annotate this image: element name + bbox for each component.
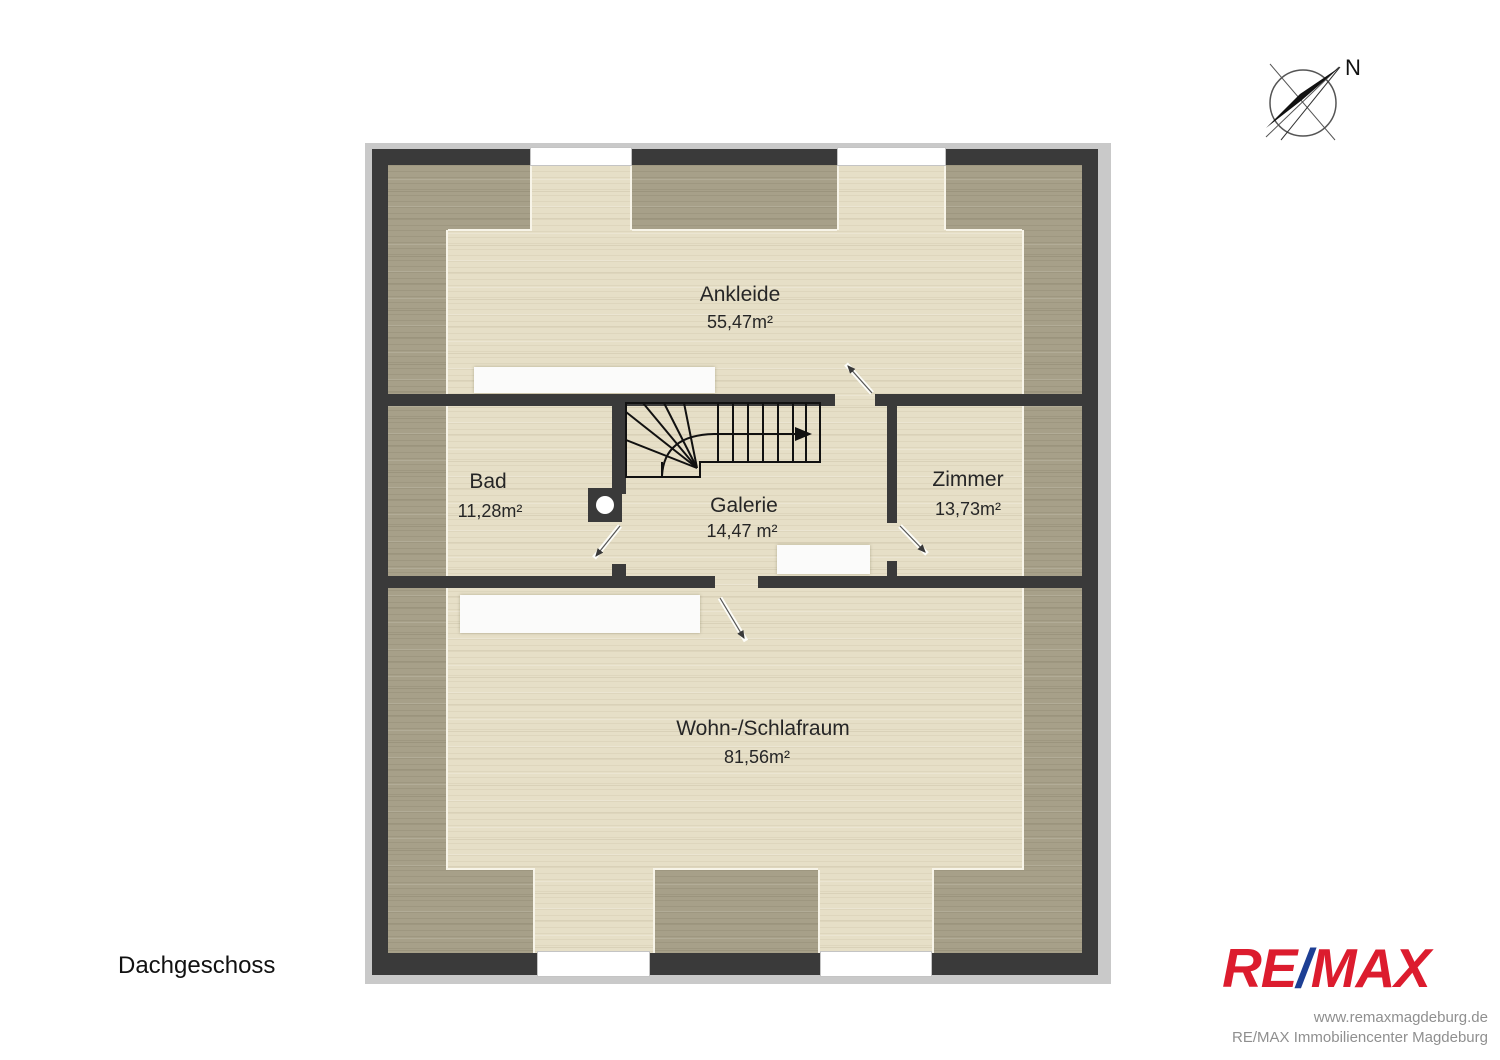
interior-wall-ankleide-right	[875, 394, 1082, 406]
built-in-element-ankleide	[474, 367, 715, 393]
compass-north-label: N	[1345, 55, 1361, 81]
room-area-ankleide: 55,47m²	[707, 312, 773, 333]
height-line	[530, 165, 532, 230]
height-line	[932, 870, 934, 953]
roof-slope-zone-top-left	[388, 165, 530, 230]
outer-wall-right	[1082, 149, 1098, 975]
outer-wall-top	[372, 149, 1098, 165]
height-line	[632, 229, 837, 231]
height-line	[837, 165, 839, 230]
height-line	[653, 870, 655, 953]
floor-title: Dachgeschoss	[118, 952, 275, 980]
roof-slope-zone-right-column	[1022, 230, 1082, 870]
interior-wall-zimmer-stub	[887, 561, 897, 578]
room-label-galerie: Galerie	[710, 494, 778, 518]
logo-re-text: RE	[1222, 937, 1296, 999]
roof-slope-zone-top-right	[946, 165, 1082, 230]
height-line	[653, 868, 818, 870]
height-line	[944, 165, 946, 230]
logo-slash-icon: /	[1296, 937, 1310, 999]
outer-wall-left	[372, 149, 388, 975]
room-area-zimmer: 13,73m²	[935, 499, 1001, 520]
window-bottom-right	[820, 951, 932, 977]
footer-company: RE/MAX Immobiliencenter Magdeburg	[1068, 1028, 1488, 1048]
room-label-zimmer: Zimmer	[932, 468, 1003, 492]
compass-rose-icon	[1266, 64, 1340, 140]
window-top-left	[530, 147, 632, 166]
interior-wall-middle-left	[388, 576, 715, 588]
roof-slope-zone-bottom-left	[388, 870, 535, 953]
chimney-flue-icon	[596, 496, 614, 514]
height-line	[932, 868, 1022, 870]
room-area-wohn-schlafraum: 81,56m²	[724, 747, 790, 768]
height-line	[533, 870, 535, 953]
roof-slope-zone-bottom-center	[655, 870, 818, 953]
roof-slope-zone-top-center	[632, 165, 837, 230]
interior-wall-middle-right	[758, 576, 1082, 588]
height-line	[818, 870, 820, 953]
height-line	[1022, 230, 1024, 870]
roof-slope-zone-bottom-right	[934, 870, 1082, 953]
outer-wall-bottom	[372, 953, 1098, 975]
height-line	[446, 868, 535, 870]
interior-wall-bad-galerie	[612, 394, 626, 494]
window-bottom-left	[537, 951, 650, 977]
room-area-galerie: 14,47 m²	[706, 521, 777, 542]
built-in-element-wohnraum	[460, 595, 700, 633]
room-label-wohn-schlafraum: Wohn-/Schlafraum	[676, 717, 850, 741]
footer-website: www.remaxmagdeburg.de	[1068, 1008, 1488, 1028]
remax-logo: RE/MAX	[1185, 936, 1430, 1000]
logo-max-text: MAX	[1311, 937, 1430, 999]
height-line	[446, 230, 448, 870]
room-area-bad: 11,28m²	[458, 501, 523, 522]
height-line	[448, 229, 532, 231]
height-line	[630, 165, 632, 230]
interior-wall-galerie-zimmer	[887, 394, 897, 523]
room-label-ankleide: Ankleide	[700, 283, 781, 307]
roof-slope-zone-left-column	[388, 230, 448, 870]
floorplan-page: Ankleide 55,47m² Bad 11,28m² Galerie 14,…	[0, 0, 1500, 1060]
height-line	[946, 229, 1022, 231]
room-label-bad: Bad	[469, 470, 506, 494]
window-top-right	[837, 147, 946, 166]
built-in-element-galerie	[777, 545, 870, 574]
interior-wall-bad-stub	[612, 564, 626, 578]
